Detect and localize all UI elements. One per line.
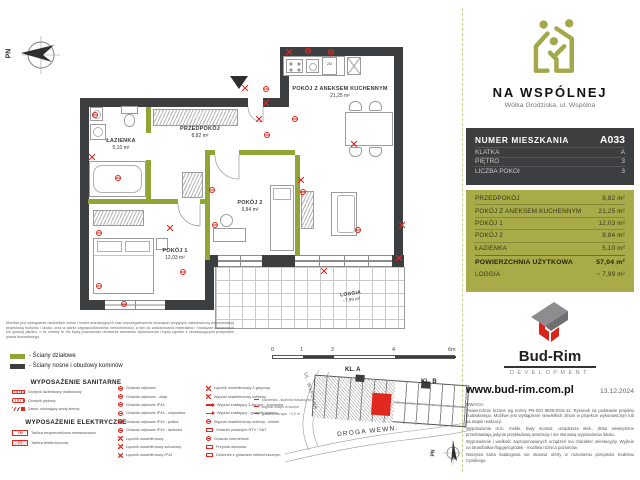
site-compass: PN [433, 438, 467, 470]
socket-icon [300, 189, 306, 195]
switch-icon [242, 85, 248, 91]
valve-icon [12, 407, 25, 411]
unit-row: KLATKAA [475, 147, 625, 157]
site-compass-icon [441, 438, 465, 466]
double-bed [93, 238, 154, 294]
room-label-room2: POKÓJ 29,84 m² [220, 200, 280, 213]
stove [286, 59, 303, 73]
area-row: ŁAZIENKA5,10 m² [475, 243, 625, 255]
total-area-row: POWIERZCHNIA UŻYTKOWA57,04 m² [475, 255, 625, 269]
panel-radiator-icon [12, 398, 25, 403]
legend-item: Łącznik oświetleniowy schodowy [118, 443, 185, 451]
socket-icon [292, 116, 298, 122]
wardrobe [301, 191, 314, 229]
legend-wall-structural: - Ściany nośne i obudowy kominów [10, 363, 123, 369]
legend-item: Gniazdo podwójne RTV / SAT [206, 426, 283, 434]
partition-wall [146, 160, 151, 203]
socket-icon [118, 428, 123, 433]
socket-icon [121, 301, 127, 307]
single-bed [270, 185, 294, 251]
legend-disclaimer: Możliwe jest wystąpienie niewielkich zmi… [6, 321, 234, 339]
power-outlet-icon [206, 413, 214, 414]
switch-icon [263, 100, 269, 106]
legend-item: TTTablica teletechniczna [12, 438, 96, 448]
unit-info-box: NUMER MIESZKANIA A033 KLATKAA PIĘTRO3 LI… [466, 128, 634, 185]
room-label-room1: POKÓJ 112,03 m² [145, 248, 205, 261]
socket-icon [118, 394, 123, 399]
note-line: Wyposażenie i wielkość zaproponowanych u… [466, 439, 634, 450]
site-compass-label: PN [430, 450, 436, 457]
partition-wall [146, 107, 151, 133]
room-label-bathroom: ŁAZIENKA5,10 m² [91, 138, 151, 151]
doorbell-icon [206, 453, 213, 457]
estate-logo: NA WSPÓLNEJ Wólka Grodziska, ul. Wspólna [466, 16, 634, 109]
legend-item: Gniazdo wtykowe IP44 [118, 401, 185, 409]
area-row: POKÓJ Z ANEKSEM KUCHENNYM21,25 m² [475, 205, 625, 217]
chair [220, 214, 233, 227]
wall [80, 98, 89, 310]
window [218, 255, 262, 267]
dash-icon [254, 399, 259, 400]
notes-title: UWAGA: [466, 402, 634, 407]
website-link[interactable]: www.bud-rim.com.pl [466, 384, 574, 396]
fuse-box-icon: TM [12, 430, 28, 436]
loggia-area-row: LOGGIA~ 7,99 m² [475, 269, 625, 281]
legend-item: Gniazdo wtykowe IP44 - łazienka [118, 426, 185, 434]
unit-number-label: NUMER MIESZKANIA [475, 135, 569, 145]
socket-icon [96, 283, 102, 289]
partition-wall [295, 155, 300, 255]
wardrobe [153, 109, 238, 126]
developer-name: Bud-Rim [504, 348, 596, 368]
door-opening [215, 150, 239, 155]
developer-logo: Bud-Rim DEVELOPMENT [466, 300, 634, 376]
developer-division: DEVELOPMENT [466, 370, 634, 376]
areas-table: PRZEDPOKÓJ8,82 m² POKÓJ Z ANEKSEM KUCHEN… [466, 190, 634, 292]
legend-item: Przycisk dzwonka [206, 443, 283, 451]
legend-item: Gniazdo internetowe [206, 434, 283, 442]
legend-item: Łącznik oświetleniowy IP44 [118, 451, 185, 459]
ladder-radiator-icon [12, 390, 25, 394]
electrical-panels-legend: TMTablica bezpiecznikowa mieszkaniowa TT… [12, 428, 96, 448]
chair [349, 101, 362, 111]
legend-item: Łącznik oświetleniowy [118, 434, 185, 442]
power-outlet-icon [206, 404, 214, 405]
area-row: POKÓJ 112,03 m² [475, 218, 625, 230]
wall [394, 47, 403, 267]
legend-item: Gniazdo wtykowe IP44 - pralka [118, 418, 185, 426]
electrical-legend-col1: Gniazdo wtykowe Gniazdo wtykowe - okap G… [118, 384, 185, 460]
switch-icon [89, 154, 95, 160]
door-opening [178, 199, 200, 204]
room-label-loggia: LOGGIA ~7,99 m² [311, 285, 392, 308]
switch-icon [167, 225, 173, 231]
socket-icon [212, 222, 218, 228]
dishwasher [322, 57, 337, 75]
chair [369, 101, 382, 111]
socket-icon [180, 269, 186, 275]
legend-item: Grzejnik płytowy [12, 396, 82, 404]
legend-item: Wypust oświetleniowy ścienny - kinkiet [206, 418, 283, 426]
developer-contact: www.bud-rim.com.pl 13.12.2024 [466, 384, 634, 396]
partition-wall-swatch [10, 354, 25, 359]
note-line: Powierzchnie liczone wg normy PN-ISO 983… [466, 408, 634, 424]
switch-icon [118, 444, 123, 449]
legend-item: Dzwonek z gniazdem teletechnicznym [206, 451, 283, 459]
switch-icon [351, 141, 357, 147]
note-line: Wyposażenie m.in. meble, biały montaż, u… [466, 426, 634, 437]
chair [349, 147, 362, 157]
socket-icon [118, 386, 123, 391]
socket-icon [96, 230, 102, 236]
telecom-box-icon: TT [12, 440, 28, 446]
socket-icon [118, 419, 123, 424]
notes-block: UWAGA: Powierzchnie liczone wg normy PN-… [466, 402, 634, 465]
wall-light-icon [206, 419, 211, 424]
switch-icon [321, 268, 327, 274]
legend-item: Gniazdo wtykowe IP44 - zmywarka [118, 409, 185, 417]
dash-icon [254, 413, 259, 414]
legend-item: Grzejnik łazienkowy drabinkowy [12, 388, 82, 396]
switch-icon [206, 386, 211, 391]
dash-icon [254, 406, 259, 407]
ceiling-light-icon [206, 394, 211, 399]
wall [205, 255, 214, 310]
chair [369, 147, 382, 157]
legend-wall-partition: - Ściany działowe [10, 353, 76, 359]
wall [80, 98, 248, 107]
socket-icon [118, 402, 123, 407]
wardrobe [182, 172, 203, 198]
switch-icon [396, 255, 402, 261]
window [105, 300, 165, 310]
switch-icon [256, 116, 262, 122]
wall [280, 47, 403, 56]
desk [213, 228, 246, 242]
socket-icon [209, 187, 215, 193]
compass: PN [8, 32, 60, 82]
area-row: PRZEDPOKÓJ8,82 m² [475, 193, 625, 205]
socket-icon [118, 411, 123, 416]
compass-icon [16, 32, 62, 78]
rtv-sat-socket-icon [206, 428, 213, 432]
partition-wall [88, 199, 151, 204]
legend-item: Gniazdo wtykowe - okap [118, 392, 185, 400]
socket-icon [305, 48, 311, 54]
socket-icon [92, 112, 98, 118]
room-label-living: POKÓJ Z ANEKSEM KUCHENNYM21,25 m² [285, 86, 395, 99]
stairwell-b-label: KL. B [421, 379, 437, 385]
switch-icon [399, 222, 405, 228]
loggia: LOGGIA ~7,99 m² [215, 267, 405, 329]
fridge [347, 57, 361, 75]
switch-icon [298, 177, 304, 183]
sofa [331, 192, 357, 236]
structural-wall-swatch [10, 364, 25, 369]
switch-icon [118, 453, 123, 458]
switch-icon [118, 436, 123, 441]
partition-wall [205, 150, 210, 260]
legend-item: Gniazdo wtykowe [118, 384, 185, 392]
floor-plan-card: PN [0, 0, 640, 480]
legend-item: Łącznik oświetleniowy 2-grupowy [206, 384, 283, 392]
estate-location: Wólka Grodziska, ul. Wspólna [466, 102, 634, 109]
stairwell-a-marker [355, 375, 364, 383]
legend-item: Zawór odcinający wody zimnej [12, 405, 82, 413]
socket-icon [328, 49, 334, 55]
estate-name: NA WSPÓLNEJ [466, 85, 634, 100]
dishwasher-label: ZM [323, 62, 336, 66]
date-label: 13.12.2024 [600, 388, 634, 395]
socket-icon [355, 227, 361, 233]
scale-bar-track [272, 355, 455, 359]
compass-label: PN [5, 49, 12, 59]
toilet-bowl [124, 114, 135, 127]
doorbell-button-icon [206, 445, 213, 449]
internet-socket-icon [206, 436, 211, 441]
scale-bar: 0 1 2 4 6m [272, 347, 458, 361]
building-wing-b [392, 381, 469, 428]
legend-item: TMTablica bezpiecznikowa mieszkaniowa [12, 428, 96, 438]
floor-plan: LOGGIA ~7,99 m² [60, 28, 466, 364]
toilet [121, 106, 138, 114]
kitchen-sink [306, 59, 319, 73]
socket-icon [263, 86, 269, 92]
window [295, 255, 392, 267]
socket-icon [115, 175, 121, 181]
socket-icon [264, 132, 270, 138]
wardrobe [93, 210, 144, 226]
estate-logo-icon [518, 16, 582, 78]
sanitary-legend: Grzejnik łazienkowy drabinkowy Grzejnik … [12, 388, 82, 413]
unit-row: PIĘTRO3 [475, 157, 625, 167]
site-plan: KL. A KL. B DROGA WEWN. UL. WSPÓLNA PN [283, 366, 470, 478]
area-row: POKÓJ 29,84 m² [475, 230, 625, 242]
door-opening [248, 98, 263, 107]
unit-number-value: A033 [600, 134, 625, 146]
highlighted-unit [371, 393, 391, 416]
switch-icon [286, 49, 292, 55]
unit-row: LICZBA POKOI3 [475, 166, 625, 176]
note-line: Niniejsza karta katalogowa nie stanowi o… [466, 452, 634, 463]
developer-logo-icon [527, 300, 573, 342]
stairwell-a-label: KL. A [345, 367, 360, 373]
room-label-hall: PRZEDPOKÓJ8,82 m² [165, 126, 235, 139]
